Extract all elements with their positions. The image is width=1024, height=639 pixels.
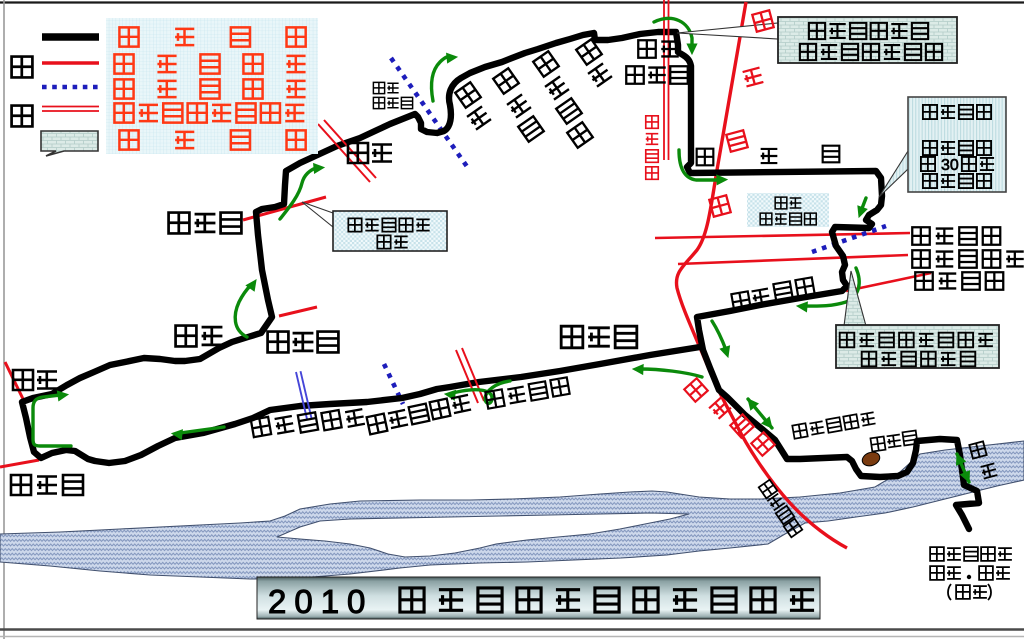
svg-text:2010: 2010: [268, 583, 373, 620]
svg-text:30: 30: [941, 157, 959, 174]
